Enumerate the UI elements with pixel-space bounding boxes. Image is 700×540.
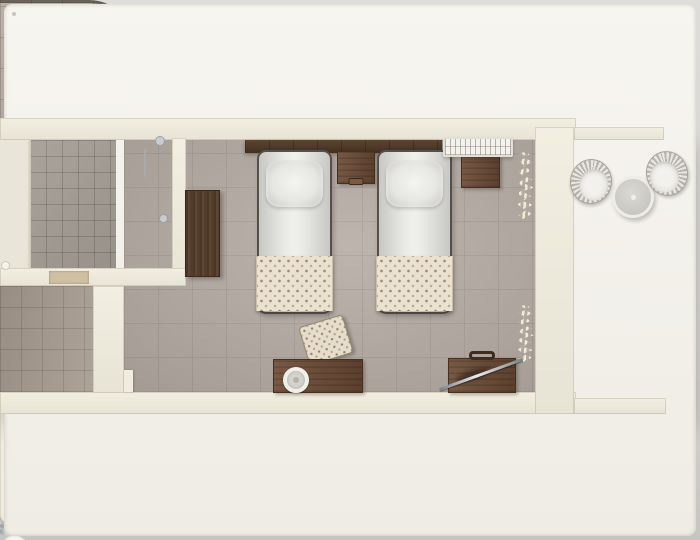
- vanity-counter: [0, 138, 31, 269]
- hand-shower-knob: [159, 214, 168, 223]
- pillow-left-bed: [266, 160, 323, 207]
- twin-bed-right: [377, 150, 452, 314]
- bathroom-bottom-wall: [0, 268, 186, 286]
- right-nightstand: [461, 156, 500, 188]
- nightstand-handle: [349, 178, 364, 185]
- balcony-bottom-wall: [574, 398, 666, 414]
- desk-lamp: [283, 367, 309, 393]
- bathroom-door-threshold: [49, 271, 89, 284]
- window-wall: [535, 127, 574, 414]
- suitcase-handle: [469, 351, 495, 360]
- bathroom-floor: [30, 138, 116, 269]
- bed-runner-right: [376, 256, 453, 311]
- soap-dish: [1, 261, 10, 270]
- ac-vent: [443, 137, 513, 157]
- wardrobe: [185, 190, 220, 277]
- bed-runner-left: [256, 256, 333, 311]
- bathroom-bedroom-wall: [172, 138, 186, 286]
- hall-bedroom-wall: [93, 286, 124, 393]
- pillow-right-bed: [386, 160, 443, 207]
- twin-bed-left: [257, 150, 332, 314]
- entry-door-stop: [124, 370, 133, 392]
- bottom-wall: [0, 392, 576, 414]
- balcony-top-wall: [574, 127, 664, 140]
- floor-plan-render: [0, 0, 700, 540]
- shower-knob: [155, 136, 165, 146]
- shower-pipe: [144, 149, 146, 177]
- entry-hall-floor: [0, 286, 93, 392]
- center-nightstand: [337, 151, 375, 184]
- rain-shower-center: [12, 12, 16, 16]
- table-center: [631, 195, 636, 200]
- desk-lamp-center: [293, 377, 299, 383]
